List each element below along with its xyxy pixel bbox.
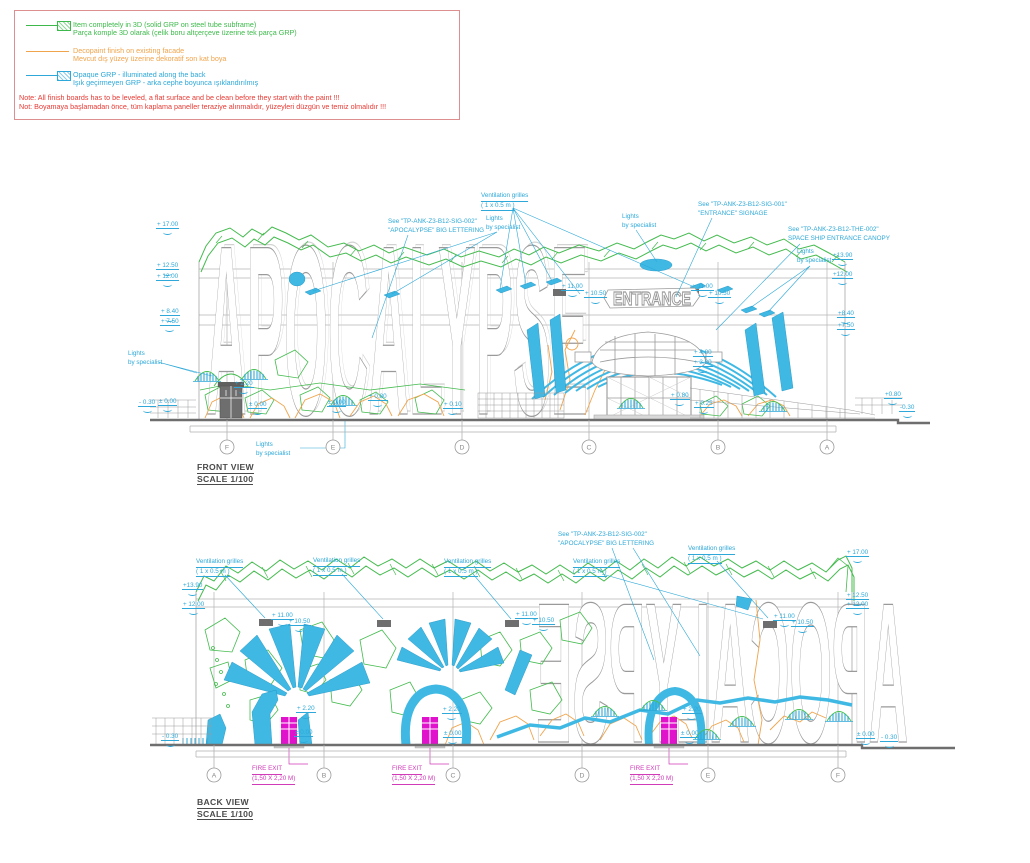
level-mark: + 2.20 xyxy=(682,707,702,720)
callout-lights: Lightsby specialist xyxy=(486,215,520,232)
svg-text:B: B xyxy=(322,773,327,780)
svg-text:D: D xyxy=(580,773,585,780)
callout-ventilation-grilles: Ventilation grilles ( 1 x 0.5 m ) xyxy=(444,558,491,577)
level-mark: +12.00 xyxy=(832,272,853,285)
level-mark: - 0.30 xyxy=(880,735,898,748)
level-mark: ± 0.00 xyxy=(443,731,462,744)
level-mark: -0.30 xyxy=(899,405,915,418)
level-mark: + 10.50 xyxy=(532,618,555,631)
level-mark: + 10.50 xyxy=(584,291,607,304)
level-mark: + 0.25 xyxy=(694,401,714,414)
level-mark: ± 0.00 xyxy=(856,732,875,745)
callout-ventilation-grilles: Ventilation grilles ( 1 x 0.5 m ) xyxy=(481,192,528,211)
level-mark: + 2.20 xyxy=(442,707,462,720)
svg-text:E: E xyxy=(331,445,336,452)
level-mark: + 12.00 xyxy=(182,602,205,615)
callout-lights: Lightsby specialist xyxy=(797,248,831,265)
callout-ventilation-grilles: Ventilation grilles ( 1 x 0.5 m ) xyxy=(196,558,243,577)
level-mark: + 10.50 xyxy=(708,291,731,304)
fire-exit-label: FIRE EXIT (1,50 X 2,20 M) xyxy=(392,765,435,785)
callout-apocalypse-lettering: See "TP-ANK-Z3-B12-SIG-002""APOCALYPSE" … xyxy=(388,218,484,235)
level-mark: + 7.50 xyxy=(160,319,180,332)
level-mark: + 0.80 xyxy=(670,393,690,406)
level-mark: + 11.00 xyxy=(561,284,584,297)
level-mark: - 0.30 xyxy=(138,400,156,413)
level-mark: +13.90 xyxy=(182,583,203,596)
level-mark: ± 0.00 xyxy=(158,399,177,412)
svg-text:F: F xyxy=(225,445,229,452)
front-entrance-sign: ENTRANCE xyxy=(604,288,700,310)
callout-lights: Lightsby specialist xyxy=(256,441,290,458)
callout-ventilation-grilles: Ventilation grilles ( 1 x 0.5 m ) xyxy=(688,545,735,564)
level-mark: ± 0.00 xyxy=(327,400,346,413)
level-mark: + 2.20 xyxy=(296,706,316,719)
drawing-sheet: Item completely in 3D (solid GRP on stee… xyxy=(0,0,1030,863)
level-mark: ± 0.00 xyxy=(680,731,699,744)
callout-lights: Lightsby specialist xyxy=(622,213,656,230)
level-mark: + 0.10 xyxy=(443,402,463,415)
level-mark: ± 0.00 xyxy=(294,730,313,743)
callout-ventilation-grilles: Ventilation grilles ( 1 x 0.5 m ) xyxy=(313,557,360,576)
level-mark: + 2.20 xyxy=(234,381,254,394)
level-mark: - 0.30 xyxy=(161,734,179,747)
level-mark: + 10.50 xyxy=(791,620,814,633)
level-mark: + 12.00 xyxy=(846,602,869,615)
level-mark: +7.50 xyxy=(837,323,855,336)
front-view-title: FRONT VIEW SCALE 1/100 xyxy=(197,462,254,485)
level-mark: + 17.00 xyxy=(846,550,869,563)
level-mark: + 0.80 xyxy=(368,394,388,407)
back-view-drawing: APOCALYPSE xyxy=(150,548,955,785)
back-view-title: BACK VIEW SCALE 1/100 xyxy=(197,797,253,820)
svg-text:D: D xyxy=(460,445,465,452)
fire-exit-label: FIRE EXIT (1,50 X 2,20 M) xyxy=(252,765,295,785)
callout-apocalypse-lettering: See "TP-ANK-Z3-B12-SIG-002""APOCALYPSE" … xyxy=(558,531,654,548)
level-mark: + 3.80 xyxy=(693,360,713,373)
callout-spaceship-canopy: See "TP-ANK-Z3-B12-THE-002"SPACE SHIP EN… xyxy=(788,226,890,243)
svg-text:A: A xyxy=(825,445,830,452)
fire-exit-label: FIRE EXIT (1,50 X 2,20 M) xyxy=(630,765,673,785)
callout-entrance-signage: See "TP-ANK-Z3-B12-SIG-001""ENTRANCE" SI… xyxy=(698,201,787,218)
svg-text:A: A xyxy=(212,773,217,780)
level-mark: +13.90 xyxy=(832,253,853,266)
svg-text:B: B xyxy=(716,445,721,452)
svg-text:F: F xyxy=(836,773,840,780)
callout-ventilation-grilles: Ventilation grilles ( 1 x 0.5 m ) xyxy=(573,558,620,577)
svg-text:C: C xyxy=(451,773,456,780)
level-mark: + 12.00 xyxy=(156,274,179,287)
svg-text:E: E xyxy=(706,773,711,780)
svg-text:C: C xyxy=(587,445,592,452)
level-mark: ± 0.00 xyxy=(248,402,267,415)
elevation-drawings-canvas: APOCALYPSE APOCALYPSE xyxy=(0,0,1030,863)
level-mark: + 10.50 xyxy=(288,619,311,632)
callout-lights: Lightsby specialist xyxy=(128,350,162,367)
level-mark: + 17.00 xyxy=(156,222,179,235)
svg-text:ENTRANCE: ENTRANCE xyxy=(613,289,691,310)
